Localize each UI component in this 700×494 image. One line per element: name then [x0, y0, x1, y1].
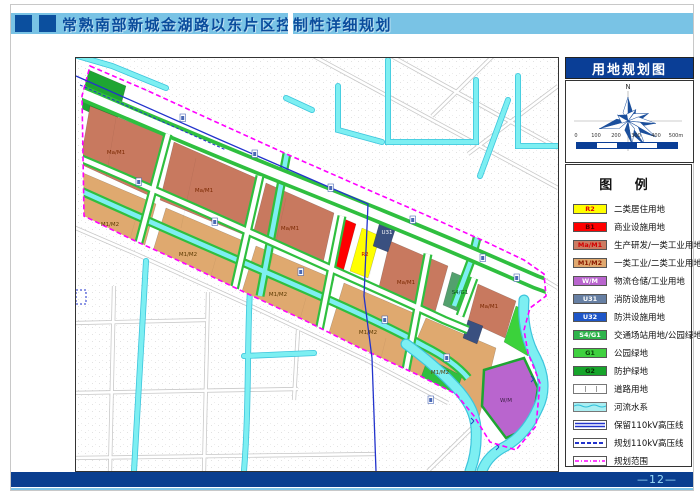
legend-item: W/M物流仓储/工业用地 — [573, 272, 691, 290]
header-divider — [288, 13, 293, 34]
land-use-map: Ma/M1Ma/M1Ma/M1Ma/M1Ma/M1M1/M2M1/M2M1/M2… — [75, 57, 559, 472]
legend-item: R2二类居住用地 — [573, 200, 691, 218]
svg-text:M1/M2: M1/M2 — [359, 330, 377, 336]
legend-item: B1商业设施用地 — [573, 218, 691, 236]
legend-item: U31消防设施用地 — [573, 290, 691, 308]
legend-item: Ma/M1生产研发/一类工业用地 — [573, 236, 691, 254]
svg-text:S4/G1: S4/G1 — [452, 290, 469, 296]
legend-title: 图 例 — [573, 174, 683, 193]
compass-box: N 0100200300400500m — [565, 80, 694, 163]
svg-text:M1/M2: M1/M2 — [431, 370, 449, 376]
svg-text:Ma/M1: Ma/M1 — [480, 304, 498, 310]
legend-list: R2二类居住用地B1商业设施用地Ma/M1生产研发/一类工业用地M1/M2一类工… — [573, 200, 691, 470]
header-square-icon — [15, 15, 32, 32]
svg-text:R2: R2 — [361, 252, 368, 258]
svg-text:Ma/M1: Ma/M1 — [397, 280, 415, 286]
legend-item: G1公园绿地 — [573, 344, 691, 362]
svg-text:Ma/M1: Ma/M1 — [281, 226, 299, 232]
legend-item: S4/G1交通场站用地/公园绿地 — [573, 326, 691, 344]
legend-item: G2防护绿地 — [573, 362, 691, 380]
legend-item: 规划110kV高压线 — [573, 434, 691, 452]
header-band: 常熟南部新城金湖路以东片区控制性详细规划 — [11, 13, 693, 34]
document-page: 常熟南部新城金湖路以东片区控制性详细规划 — [0, 0, 700, 494]
map-canvas: Ma/M1Ma/M1Ma/M1Ma/M1Ma/M1M1/M2M1/M2M1/M2… — [76, 58, 558, 471]
footer-accent-line — [11, 488, 693, 490]
north-label: N — [625, 83, 630, 91]
svg-text:M1/M2: M1/M2 — [179, 252, 197, 258]
svg-text:U31: U31 — [381, 230, 392, 236]
legend-item: U32防洪设施用地 — [573, 308, 691, 326]
map-title-box: 用地规划图 — [565, 57, 694, 79]
legend-item: 保留110kV高压线 — [573, 416, 691, 434]
svg-text:Ma/M1: Ma/M1 — [107, 150, 125, 156]
scale-bar: 0100200300400500m — [576, 133, 683, 155]
legend-item: 道路用地 — [573, 380, 691, 398]
header-square-icon — [39, 15, 56, 32]
svg-text:M1/M2: M1/M2 — [101, 222, 119, 228]
legend-item: M1/M2一类工业/二类工业用地 — [573, 254, 691, 272]
legend-item: 河流水系 — [573, 398, 691, 416]
legend-box: 图 例 R2二类居住用地B1商业设施用地Ma/M1生产研发/一类工业用地M1/M… — [565, 164, 692, 467]
page-number: —12— — [637, 473, 677, 486]
svg-text:W/M: W/M — [500, 398, 512, 404]
svg-text:M1/M2: M1/M2 — [269, 292, 287, 298]
footer-bar: —12— — [11, 472, 693, 487]
svg-text:Ma/M1: Ma/M1 — [195, 188, 213, 194]
legend-item: 规划范围 — [573, 452, 691, 470]
page-title: 常熟南部新城金湖路以东片区控制性详细规划 — [62, 14, 392, 35]
